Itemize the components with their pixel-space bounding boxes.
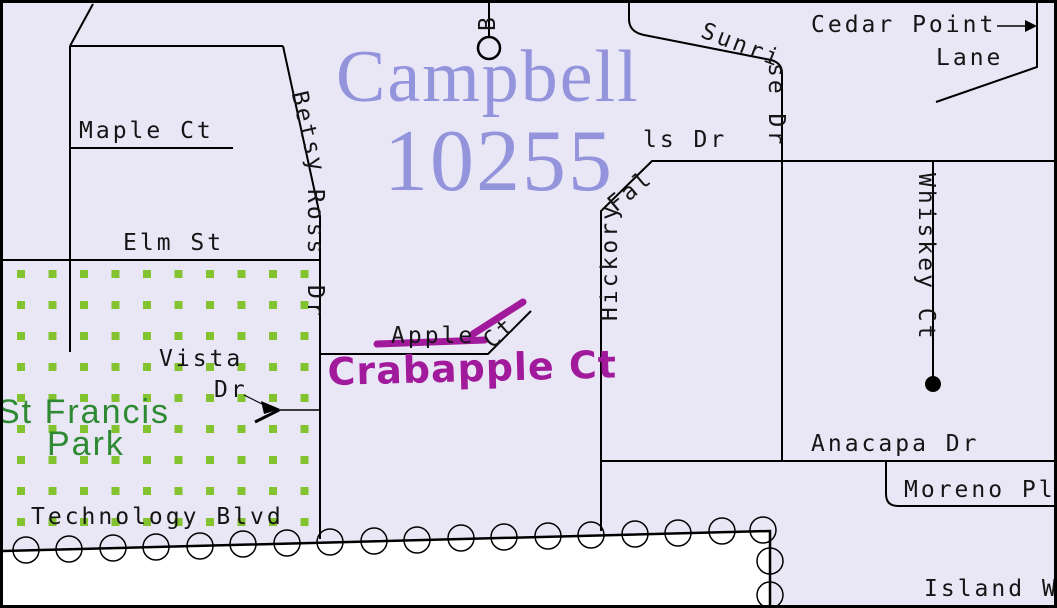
park-label-line1: St Francis [0,395,170,429]
park-label-line2: Park [47,427,125,461]
road-topleft-diagonal [70,4,93,46]
road-hickory-falls-dr [601,161,1054,531]
street-label-apple-seg1: Apple [391,325,475,348]
map-title-number: 10255 [384,118,614,206]
map-title-name: Campbell [336,40,640,114]
street-label-island-w: Island W [924,578,1057,601]
street-label-vista-line2: Dr [214,379,248,402]
street-label-whiskey-ct: Whiskey Ct [914,173,937,341]
street-label-technology-blvd: Technology Blvd [31,506,284,529]
street-label-vista-line1: Vista [159,348,243,371]
cedar-point-arrow [997,20,1037,32]
street-label-maple-ct: Maple Ct [79,120,214,143]
street-label-sunrise-seg2: se Dr [764,63,787,147]
street-label-betsy-ross-seg3: Dr [303,285,326,319]
whiskey-ct-end-dot [925,376,941,392]
street-label-moreno-pl: Moreno Pl [904,479,1056,502]
street-label-cedar-point-line2: Lane [936,47,1003,70]
street-label-hickory-seg1: Hickory [599,203,622,321]
map-canvas[interactable]: Maple Ct Elm St Betsy Ross Dr B Sunri se… [0,0,1057,608]
street-label-elm-st: Elm St [123,232,224,255]
handwritten-annotation-crabapple-ct: Crabapple Ct [327,345,618,391]
street-label-b-partial: B [477,14,500,31]
street-label-anacapa-dr: Anacapa Dr [811,433,979,456]
road-sunrise-dr [629,3,782,461]
street-label-cedar-point-line1: Cedar Point [811,14,996,37]
street-label-hickory-seg3: ls Dr [643,129,727,152]
street-label-betsy-ross-seg2: Ross [303,189,326,256]
